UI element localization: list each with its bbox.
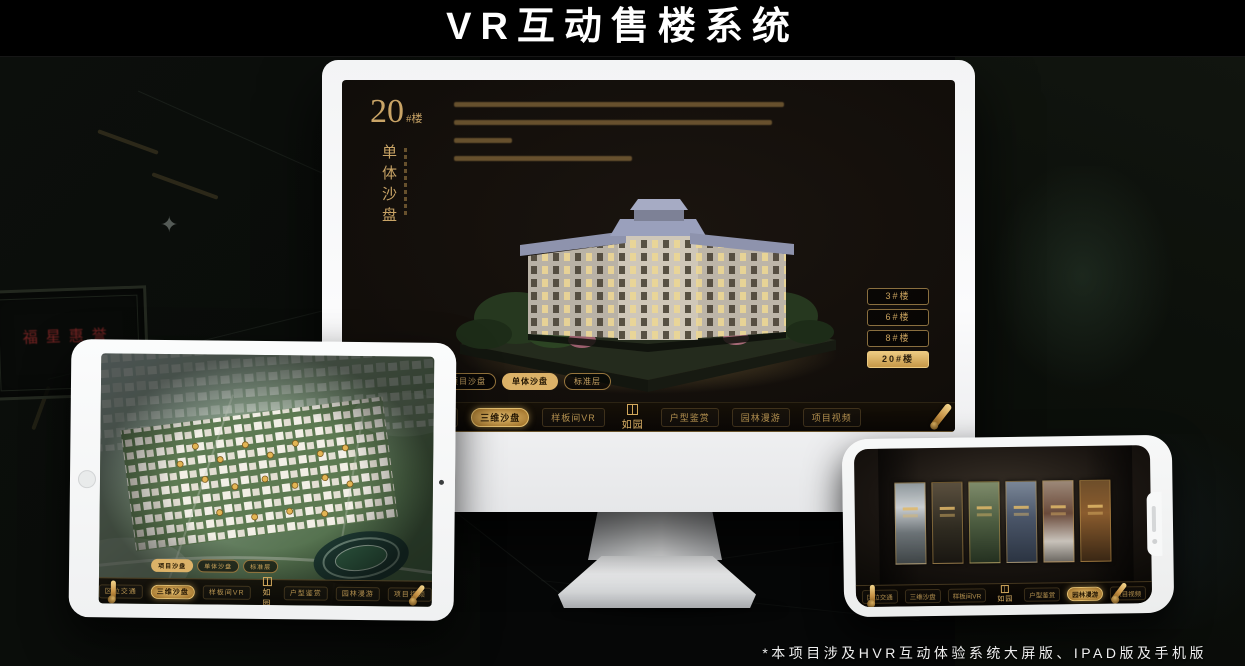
top-banner: VR互动售楼系统: [0, 0, 1245, 57]
monitor-nav-样板间VR[interactable]: 样板间VR: [542, 408, 605, 427]
camera-icon: [439, 480, 444, 485]
logo-text: 如园: [262, 587, 271, 607]
description-line: [454, 138, 512, 143]
phone-notch: [1147, 492, 1163, 556]
tablet-device: 项目沙盘单体沙盘标准层 区位交通三维沙盘样板间VR如园户型鉴赏园林漫游项目视频: [69, 339, 457, 621]
sandbox-tabs: 项目沙盘单体沙盘标准层: [151, 559, 278, 573]
sandbox-tabs: 项目沙盘单体沙盘标准层: [440, 373, 611, 390]
description-line: [454, 120, 772, 125]
gallery-panel-interior[interactable]: [1079, 480, 1111, 562]
map-label-bar: [151, 172, 218, 200]
phone-device: 区位交通三维沙盘样板间VR如园户型鉴赏园林漫游项目视频: [842, 435, 1174, 618]
vr-scene-gallery: [894, 480, 1111, 565]
tablet-nav-bar: 区位交通三维沙盘样板间VR如园户型鉴赏园林漫游项目视频: [99, 577, 432, 606]
tablet-nav-三维沙盘[interactable]: 三维沙盘: [151, 584, 195, 598]
description-line: [454, 102, 784, 107]
building-number: 20: [370, 93, 404, 130]
map-label-bar: [97, 129, 159, 155]
phone-nav-bar: 区位交通三维沙盘样板间VR如园户型鉴赏园林漫游项目视频: [856, 581, 1152, 607]
scroll-icon[interactable]: [111, 580, 116, 600]
promo-composite: ✦ 福星惠誉 VR互动售楼系统 20#楼 单体沙盘: [0, 0, 1245, 666]
tablet-nav-户型鉴赏[interactable]: 户型鉴赏: [284, 586, 328, 600]
speaker-icon: [1152, 506, 1156, 532]
screen-heading: 20#楼: [370, 94, 423, 130]
floor-button-3#楼[interactable]: 3#楼: [867, 288, 929, 305]
floor-button-group: 3#楼6#楼8#楼20#楼: [867, 288, 929, 368]
logo-text: 如园: [622, 416, 644, 431]
tab-标准层[interactable]: 标准层: [564, 373, 611, 390]
phone-nav-三维沙盘[interactable]: 三维沙盘: [905, 588, 941, 603]
tablet-nav-区位交通[interactable]: 区位交通: [99, 584, 143, 598]
gallery-panel-garden[interactable]: [968, 481, 1000, 563]
tab-项目沙盘[interactable]: 项目沙盘: [151, 559, 193, 572]
building-3d-view[interactable]: [430, 146, 866, 402]
phone-nav-样板间VR[interactable]: 样板间VR: [948, 588, 987, 603]
tablet-nav-样板间VR[interactable]: 样板间VR: [203, 585, 251, 599]
tablet-logo: 如园: [262, 577, 272, 607]
tab-单体沙盘[interactable]: 单体沙盘: [197, 559, 239, 572]
phone-nav-户型鉴赏[interactable]: 户型鉴赏: [1024, 587, 1060, 602]
logo-text: 如园: [997, 594, 1013, 604]
tab-标准层[interactable]: 标准层: [243, 560, 278, 573]
logo-seal-icon: [627, 404, 638, 415]
footnote: *本项目涉及HVR互动体验系统大屏版、IPAD版及手机版: [762, 643, 1207, 663]
floor-button-8#楼[interactable]: 8#楼: [867, 330, 929, 347]
building-suffix: #楼: [406, 113, 423, 125]
monitor-logo: 如园: [622, 404, 644, 431]
logo-seal-icon: [263, 577, 272, 586]
floor-button-20#楼[interactable]: 20#楼: [867, 351, 929, 368]
floor-button-6#楼[interactable]: 6#楼: [867, 309, 929, 326]
tablet-screen: 项目沙盘单体沙盘标准层 区位交通三维沙盘样板间VR如园户型鉴赏园林漫游项目视频: [99, 353, 435, 606]
page-title: VR互动售楼系统: [0, 0, 1245, 54]
heading-caption-bar: [404, 148, 407, 218]
scroll-icon[interactable]: [870, 585, 875, 605]
gallery-panel-pavilion[interactable]: [931, 482, 963, 564]
phone-logo: 如园: [997, 585, 1013, 604]
home-button[interactable]: [78, 470, 96, 488]
logo-seal-icon: [1001, 585, 1009, 593]
phone-screen: 区位交通三维沙盘样板间VR如园户型鉴赏园林漫游项目视频: [854, 445, 1152, 607]
phone-nav-园林漫游[interactable]: 园林漫游: [1067, 586, 1103, 601]
gallery-panel-courtyard[interactable]: [894, 482, 926, 564]
compass-icon: ✦: [160, 212, 178, 238]
monitor-nav-项目视频[interactable]: 项目视频: [803, 408, 861, 427]
monitor-nav-园林漫游[interactable]: 园林漫游: [732, 408, 790, 427]
heading-vertical-title: 单体沙盘: [378, 144, 399, 228]
monitor-stand-neck: [588, 506, 722, 560]
gallery-panel-autumn[interactable]: [1042, 480, 1074, 562]
tab-单体沙盘[interactable]: 单体沙盘: [502, 373, 558, 390]
tablet-nav-园林漫游[interactable]: 园林漫游: [336, 586, 380, 600]
gallery-panel-tower[interactable]: [1005, 481, 1037, 563]
monitor-nav-三维沙盘[interactable]: 三维沙盘: [471, 408, 529, 427]
monitor-nav-户型鉴赏[interactable]: 户型鉴赏: [661, 408, 719, 427]
camera-icon: [1152, 539, 1157, 544]
